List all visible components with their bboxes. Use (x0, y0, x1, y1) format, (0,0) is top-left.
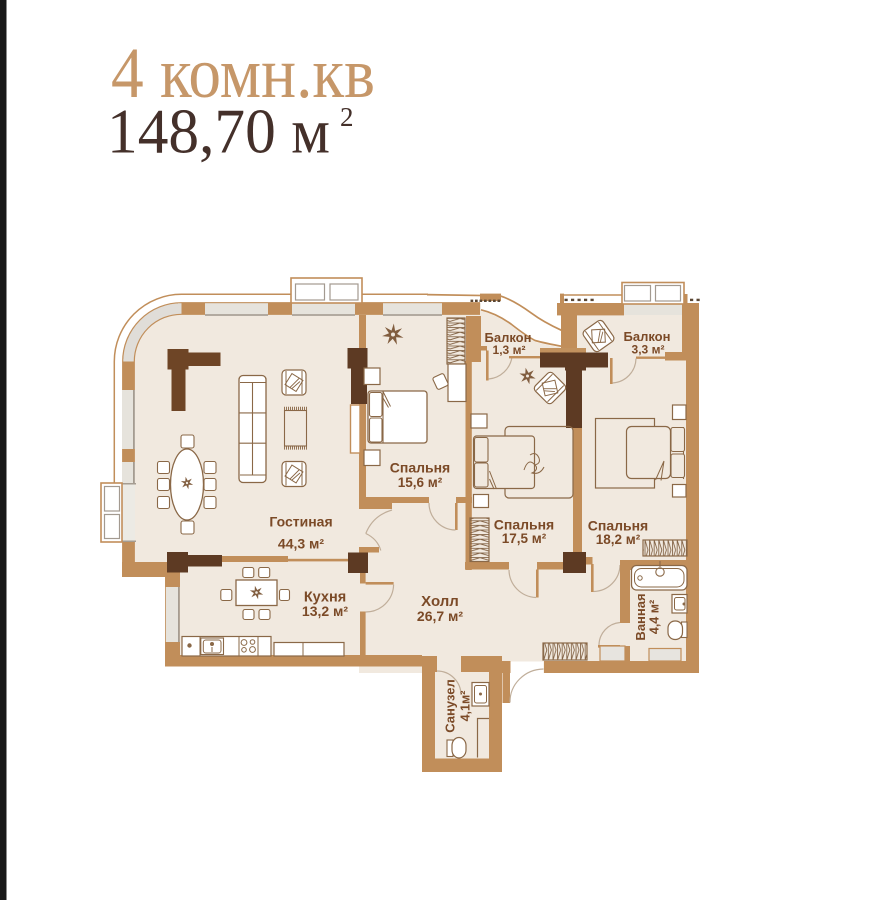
svg-text:26,7 м²: 26,7 м² (417, 608, 463, 624)
svg-text:148,70 м: 148,70 м (107, 96, 330, 167)
svg-text:Спальня: Спальня (390, 460, 450, 476)
svg-text:Гостиная: Гостиная (269, 514, 332, 530)
svg-text:4,4 м²: 4,4 м² (648, 600, 662, 634)
svg-text:4,1м²: 4,1м² (459, 691, 473, 722)
svg-text:3,3 м²: 3,3 м² (632, 343, 665, 357)
svg-text:2: 2 (340, 102, 354, 132)
svg-text:44,3 м²: 44,3 м² (278, 536, 324, 552)
svg-text:13,2 м²: 13,2 м² (302, 603, 348, 619)
svg-text:15,6 м²: 15,6 м² (398, 475, 443, 490)
svg-text:1,3 м²: 1,3 м² (493, 343, 526, 357)
svg-text:18,2 м²: 18,2 м² (596, 532, 641, 547)
svg-text:Ванная: Ванная (633, 593, 648, 640)
svg-text:Санузел: Санузел (443, 679, 458, 732)
svg-text:17,5 м²: 17,5 м² (502, 531, 547, 546)
